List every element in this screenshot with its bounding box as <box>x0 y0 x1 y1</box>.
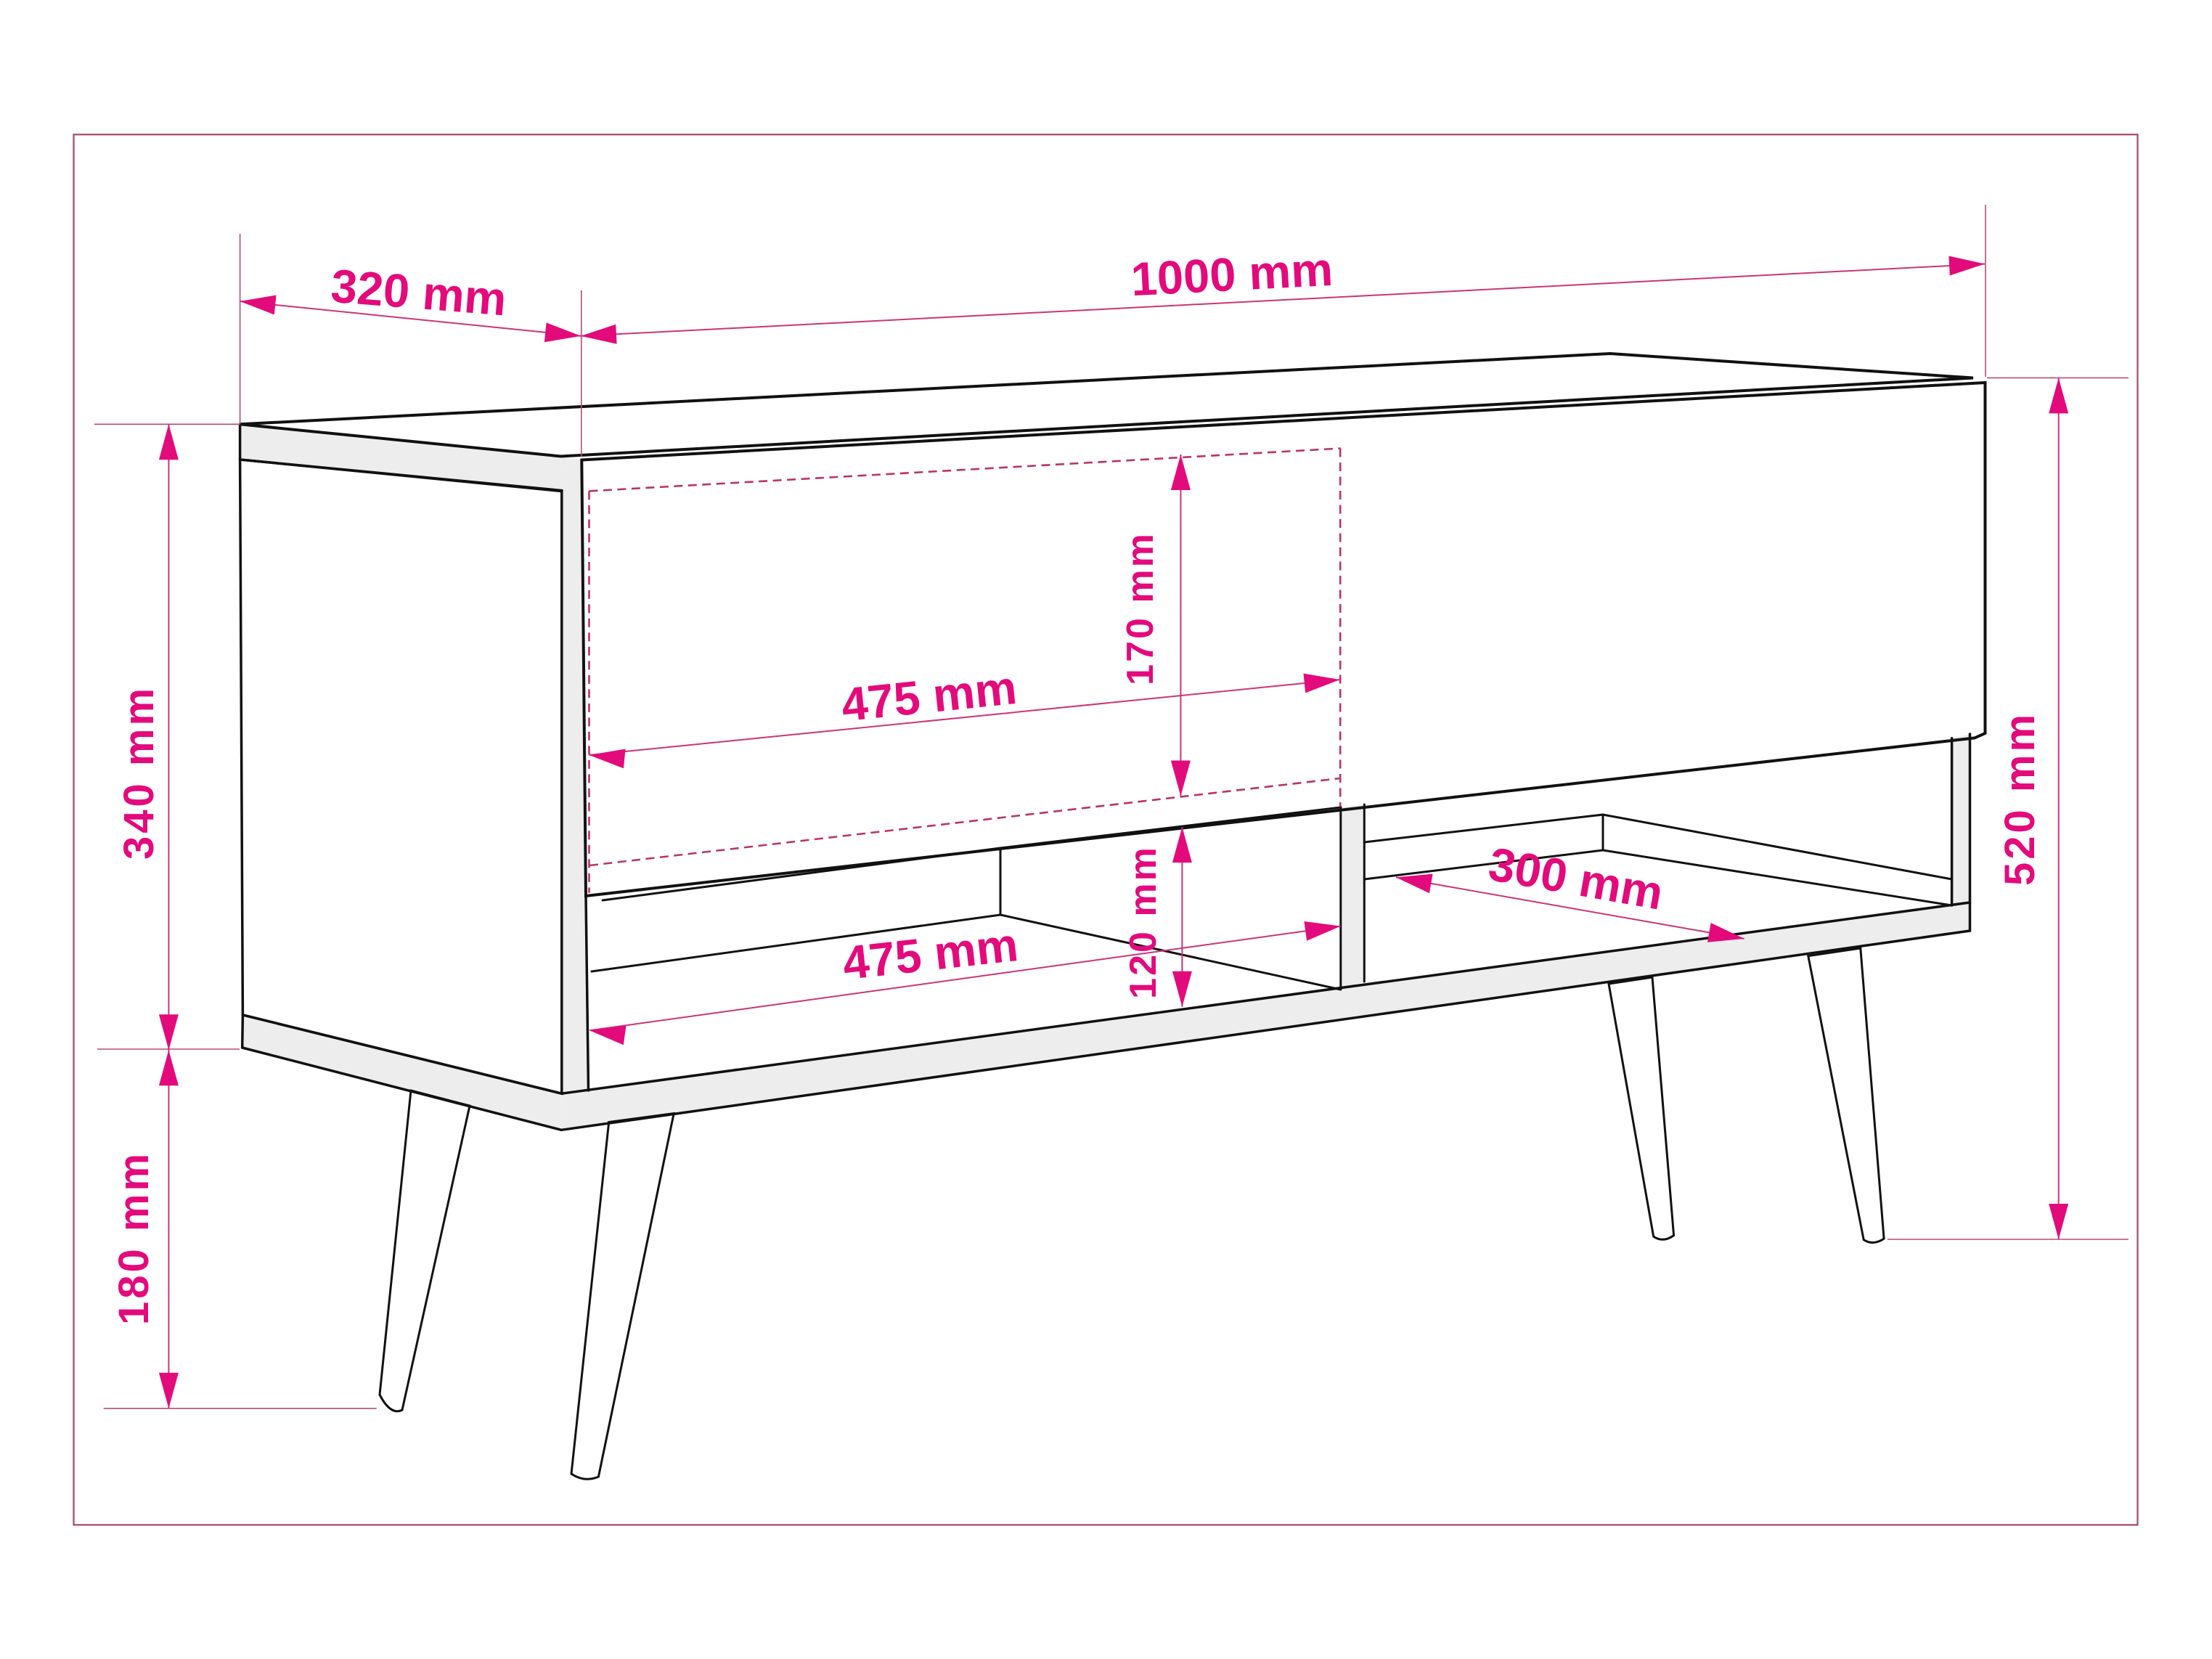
svg-text:520 mm: 520 mm <box>1996 712 2044 886</box>
svg-text:1000 mm: 1000 mm <box>1130 242 1334 306</box>
svg-text:120 mm: 120 mm <box>1122 845 1164 999</box>
svg-text:340 mm: 340 mm <box>115 685 163 860</box>
svg-text:180 mm: 180 mm <box>110 1151 158 1325</box>
svg-text:170 mm: 170 mm <box>1119 531 1162 685</box>
